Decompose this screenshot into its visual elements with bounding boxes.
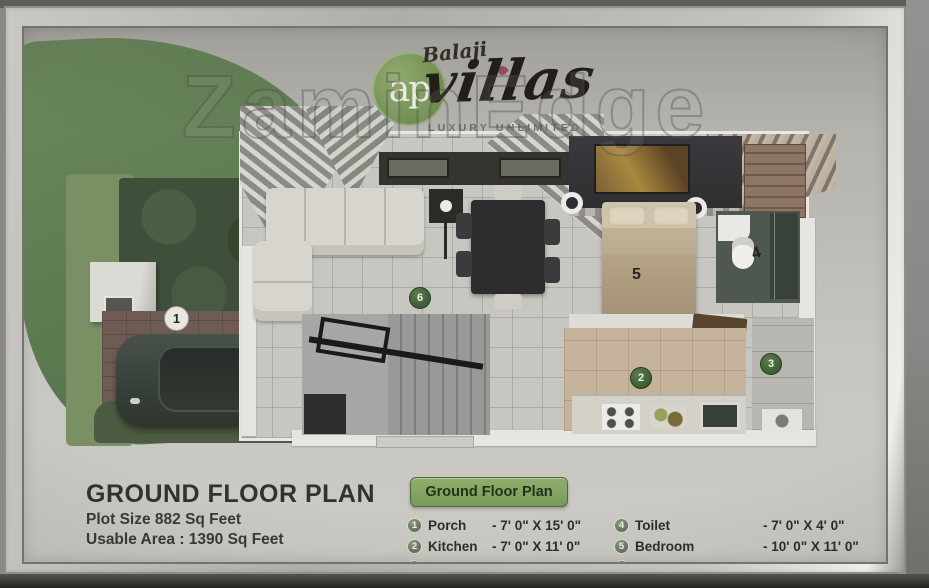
brick-accent-wall <box>744 144 806 218</box>
below-frame-shadow <box>0 574 929 588</box>
washing-machine <box>762 409 802 433</box>
stair-steps <box>388 314 490 435</box>
legend-item-bedroom: 5 Bedroom - 10' 0" X 11' 0" <box>614 536 860 557</box>
legend-num-badge: 1 <box>407 518 422 533</box>
legend-room-name: Drawing & Dining <box>635 560 757 562</box>
plot-size: Plot Size 882 Sq Feet <box>86 511 375 529</box>
ground-floor-plan-badge: Ground Floor Plan <box>410 477 568 507</box>
legend-room-dim: - 7' 0" X 11' 0" <box>492 539 580 554</box>
tv-screen <box>387 158 449 178</box>
legend-room-name: Kitchen <box>428 539 486 554</box>
logo-brand-name: villas <box>419 45 599 117</box>
marker-kitchen: 2 <box>630 367 652 389</box>
plan-info-block: GROUND FLOOR PLAN Plot Size 882 Sq Feet … <box>86 480 375 549</box>
legend-item-toilet: 4 Toilet - 7' 0" X 4' 0" <box>614 515 860 536</box>
legend-num-badge: 3 <box>407 560 422 562</box>
pillow <box>652 206 690 226</box>
framed-floor-plan-photo: ap Balaji villas LUXURY UNLIMITED <box>0 0 929 588</box>
bedside-lamp <box>561 192 583 214</box>
marker-porch: 1 <box>164 306 189 331</box>
wall-art <box>594 144 690 194</box>
dining-chair <box>544 219 560 245</box>
pillow <box>608 206 646 226</box>
stair-railing-loop <box>316 317 391 364</box>
entry-steps <box>376 436 474 448</box>
marker-drawing-dining: 6 <box>409 287 431 309</box>
legend-item-drawing-dining: 6 Drawing & Dining - 10' 4" X 19' 8" <box>614 557 860 562</box>
legend-room-dim: - 10' 0" X 4' 0" <box>492 560 581 562</box>
legend-room-dim: - 10' 4" X 19' 8" <box>763 560 860 562</box>
table-lamp <box>440 200 452 212</box>
bed <box>602 202 696 315</box>
legend-num-badge: 6 <box>614 560 629 562</box>
tv-screen <box>499 158 561 178</box>
counter-items <box>650 406 686 428</box>
dining-chair <box>456 213 472 239</box>
dining-chair <box>494 294 522 309</box>
legend-room-name: Toilet <box>635 518 757 533</box>
legend-num-badge: 5 <box>614 539 629 554</box>
legend-room-dim: - 7' 0" X 4' 0" <box>763 518 845 533</box>
legend-room-name: Bedroom <box>635 539 757 554</box>
dining-table <box>471 200 545 294</box>
poster: ap Balaji villas LUXURY UNLIMITED <box>24 28 886 562</box>
wall-right-strip <box>906 0 929 588</box>
usable-area: Usable Area : 1390 Sq Feet <box>86 531 375 549</box>
poster-frame: ap Balaji villas LUXURY UNLIMITED <box>4 6 906 574</box>
brand-logo: ap Balaji villas LUXURY UNLIMITED <box>364 40 594 155</box>
car-headlight <box>130 398 140 404</box>
dining-chair <box>456 251 472 277</box>
legend-column-right: 4 Toilet - 7' 0" X 4' 0" 5 Bedroom - 10'… <box>614 515 860 562</box>
cabinet-leg <box>444 223 447 259</box>
legend-item-wash: 3 Wash - 10' 0" X 4' 0" <box>407 557 581 562</box>
sofa-side <box>254 241 312 321</box>
stove <box>602 404 640 430</box>
dining-chair <box>544 257 560 283</box>
tv-console <box>379 152 579 185</box>
blanket <box>602 228 696 315</box>
stair-storage <box>304 394 346 434</box>
legend-room-dim: - 7' 0" X 15' 0" <box>492 518 581 533</box>
legend-num-badge: 2 <box>407 539 422 554</box>
kitchen-counter <box>572 394 746 434</box>
shower-area <box>770 213 798 299</box>
floor-plan-render: 1 2 3 4 5 6 <box>64 101 824 461</box>
legend-room-name: Porch <box>428 518 486 533</box>
kitchen-sink <box>700 402 740 430</box>
legend-item-kitchen: 2 Kitchen - 7' 0" X 11' 0" <box>407 536 581 557</box>
legend-column-left: 1 Porch - 7' 0" X 15' 0" 2 Kitchen - 7' … <box>407 515 581 562</box>
plan-title: GROUND FLOOR PLAN <box>86 480 375 509</box>
legend-room-name: Wash <box>428 560 486 562</box>
legend-item-porch: 1 Porch - 7' 0" X 15' 0" <box>407 515 581 536</box>
marker-wash: 3 <box>760 353 782 375</box>
marker-bedroom: 5 <box>632 266 641 284</box>
logo-tagline: LUXURY UNLIMITED <box>428 122 582 134</box>
legend-room-dim: - 10' 0" X 11' 0" <box>763 539 859 554</box>
dining-chair <box>494 185 522 200</box>
legend-num-badge: 4 <box>614 518 629 533</box>
